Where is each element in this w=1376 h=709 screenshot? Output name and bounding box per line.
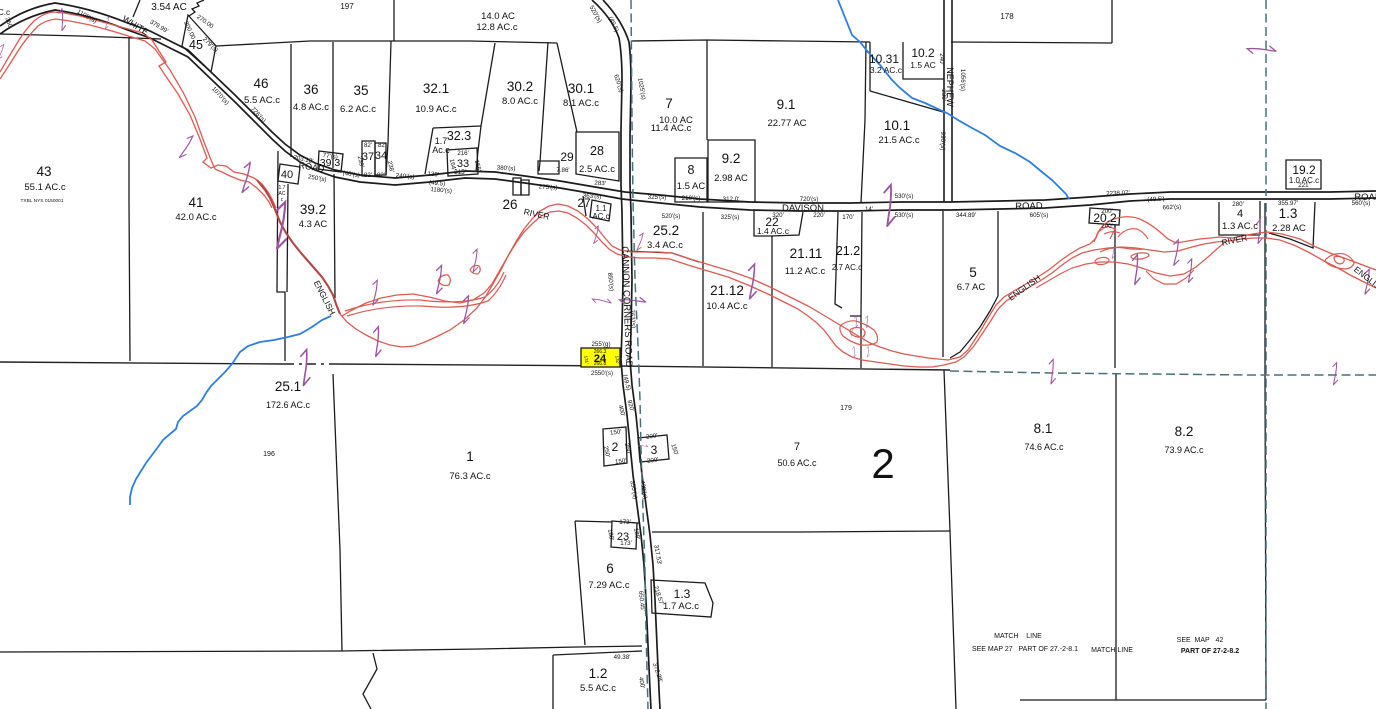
svg-text:220′: 220′ [813, 212, 825, 219]
svg-text:325′(s): 325′(s) [648, 194, 667, 201]
svg-text:2238.07′: 2238.07′ [1106, 190, 1131, 198]
svg-text:179: 179 [840, 405, 852, 412]
svg-text:6.7 AC: 6.7 AC [957, 282, 986, 293]
svg-text:22.77 AC: 22.77 AC [767, 118, 806, 129]
svg-text:46: 46 [253, 76, 268, 91]
svg-text:82′: 82′ [364, 142, 373, 149]
svg-text:215′: 215′ [454, 169, 466, 176]
svg-text:32.3: 32.3 [447, 129, 471, 143]
svg-text:138′: 138′ [427, 171, 440, 179]
svg-text:266.3: 266.3 [594, 349, 607, 355]
svg-text:320′: 320′ [772, 212, 784, 219]
svg-text:3: 3 [651, 443, 658, 457]
svg-text:2: 2 [612, 440, 619, 454]
svg-text:11.2 AC.c: 11.2 AC.c [785, 266, 826, 277]
svg-text:82′: 82′ [364, 172, 373, 179]
svg-text:76.3 AC.c: 76.3 AC.c [449, 471, 490, 482]
svg-text:26: 26 [502, 197, 517, 212]
svg-text:355.97′: 355.97′ [1278, 200, 1299, 207]
svg-text:170′: 170′ [842, 214, 854, 221]
svg-text:7.86′: 7.86′ [556, 167, 570, 174]
svg-text:14.0 AC: 14.0 AC [481, 11, 515, 22]
svg-text:25.1: 25.1 [275, 379, 301, 394]
svg-text:240′: 240′ [938, 53, 945, 65]
svg-text:344.89′: 344.89′ [956, 212, 977, 219]
svg-text:3.2 AC.c: 3.2 AC.c [870, 65, 903, 75]
svg-text:3.4 AC.c: 3.4 AC.c [647, 240, 683, 251]
svg-text:21.12: 21.12 [710, 283, 744, 298]
svg-text:210′(s): 210′(s) [682, 195, 701, 202]
svg-text:SEE MAP 42: SEE MAP 42 [1177, 637, 1224, 644]
svg-text:2.7 AC.c: 2.7 AC.c [832, 263, 862, 272]
svg-text:12.8 AC.c: 12.8 AC.c [476, 22, 517, 33]
svg-text:C.c: C.c [0, 8, 10, 17]
svg-text:8.1: 8.1 [1034, 421, 1053, 436]
svg-text:11.4 AC.c: 11.4 AC.c [651, 123, 692, 134]
svg-text:200′: 200′ [1101, 208, 1113, 215]
svg-text:25.2: 25.2 [653, 223, 679, 238]
svg-text:216′: 216′ [457, 150, 469, 157]
svg-text:283′: 283′ [594, 180, 607, 188]
svg-text:4.3 AC: 4.3 AC [299, 219, 328, 230]
svg-text:49.38′: 49.38′ [614, 654, 631, 661]
svg-text:29: 29 [560, 150, 574, 164]
svg-text:(49.5′): (49.5′) [1147, 196, 1165, 204]
svg-text:5.5 AC.c: 5.5 AC.c [244, 95, 280, 106]
svg-text:7: 7 [794, 441, 800, 453]
svg-text:36: 36 [303, 82, 318, 97]
svg-text:7: 7 [665, 96, 673, 111]
svg-text:10.1: 10.1 [884, 118, 910, 133]
svg-text:1.2: 1.2 [589, 666, 608, 681]
svg-text:2550′(s): 2550′(s) [591, 370, 613, 377]
svg-text:82′: 82′ [377, 172, 386, 179]
svg-text:173′: 173′ [619, 519, 631, 526]
svg-text:2.28 AC: 2.28 AC [1272, 223, 1306, 234]
svg-text:266.8: 266.8 [594, 361, 607, 367]
svg-text:275′(s): 275′(s) [539, 184, 558, 192]
svg-text:MATCH LINE: MATCH LINE [1091, 647, 1133, 654]
svg-text:1.5 AC: 1.5 AC [677, 181, 706, 192]
svg-text:35: 35 [353, 83, 368, 98]
svg-text:TXBL NYS 0150001: TXBL NYS 0150001 [20, 198, 63, 204]
svg-text:178: 178 [1000, 12, 1014, 21]
svg-text:312.0′: 312.0′ [723, 196, 740, 203]
svg-text:530′(s): 530′(s) [895, 212, 914, 219]
svg-text:4: 4 [1237, 208, 1243, 220]
svg-text:173′: 173′ [620, 540, 632, 547]
svg-text:28: 28 [590, 144, 604, 158]
svg-text:6.2 AC.c: 6.2 AC.c [340, 104, 376, 115]
svg-text:8.2: 8.2 [1175, 424, 1194, 439]
svg-text:8.0 AC.c: 8.0 AC.c [502, 96, 538, 107]
svg-text:9.1: 9.1 [777, 97, 796, 112]
svg-text:34: 34 [375, 150, 387, 162]
svg-text:SEE MAP 27 PART OF 27.-2-8.1: SEE MAP 27 PART OF 27.-2-8.1 [972, 646, 1078, 653]
svg-text:8: 8 [688, 163, 695, 177]
svg-text:1.3: 1.3 [1279, 206, 1298, 221]
svg-text:1.4 AC.c: 1.4 AC.c [757, 226, 790, 236]
svg-text:1: 1 [466, 449, 474, 464]
svg-text:10.9 AC.c: 10.9 AC.c [415, 104, 456, 115]
svg-text:255′(g): 255′(g) [591, 341, 610, 348]
svg-text:197: 197 [340, 2, 354, 11]
svg-text:14′: 14′ [865, 206, 874, 213]
svg-text:520′(s): 520′(s) [662, 213, 681, 220]
svg-text:1056′(s): 1056′(s) [959, 69, 966, 91]
svg-text:990′(s): 990′(s) [939, 132, 946, 151]
svg-text:21.2: 21.2 [836, 244, 860, 258]
svg-text:7.29 AC.c: 7.29 AC.c [588, 580, 629, 591]
svg-text:21.11: 21.11 [790, 246, 823, 261]
svg-text:1.5 AC: 1.5 AC [910, 60, 936, 70]
svg-text:4.8 AC.c: 4.8 AC.c [293, 102, 329, 113]
svg-text:10.31: 10.31 [869, 52, 899, 66]
svg-text:10.4 AC.c: 10.4 AC.c [706, 301, 747, 312]
svg-text:PART OF 27-2-8.2: PART OF 27-2-8.2 [1181, 648, 1239, 655]
svg-text:1.7 AC.c: 1.7 AC.c [663, 601, 699, 612]
svg-text:720′(s): 720′(s) [800, 196, 819, 203]
svg-text:9.2: 9.2 [722, 151, 741, 166]
svg-text:30.1: 30.1 [568, 81, 594, 96]
svg-text:21.5 AC.c: 21.5 AC.c [878, 135, 919, 146]
svg-text:30.2: 30.2 [507, 79, 533, 94]
svg-text:50.6 AC.c: 50.6 AC.c [777, 458, 817, 468]
svg-text:280′: 280′ [1232, 201, 1244, 208]
svg-text:2.5 AC.c: 2.5 AC.c [579, 164, 615, 175]
svg-text:5.5 AC.c: 5.5 AC.c [580, 683, 616, 694]
svg-text:10.2: 10.2 [911, 46, 935, 60]
svg-text:8.1 AC.c: 8.1 AC.c [563, 98, 599, 109]
svg-text:41: 41 [188, 195, 203, 210]
svg-text:530′(s): 530′(s) [895, 193, 914, 200]
svg-text:1.3: 1.3 [674, 587, 691, 601]
svg-text:221′: 221′ [1298, 182, 1310, 189]
svg-text:380′(s): 380′(s) [497, 165, 516, 173]
svg-text:230′: 230′ [940, 89, 947, 101]
svg-text:MATCH LINE: MATCH LINE [994, 633, 1042, 640]
svg-text:ROAD: ROAD [1015, 201, 1043, 212]
svg-text:2.98 AC: 2.98 AC [714, 173, 748, 184]
svg-text:42.0 AC.c: 42.0 AC.c [175, 212, 216, 223]
svg-text:19.2: 19.2 [1292, 163, 1316, 177]
svg-text:55.1 AC.c: 55.1 AC.c [24, 182, 65, 193]
svg-text:Ac.c: Ac.c [432, 145, 450, 155]
svg-text:662′(s): 662′(s) [1162, 204, 1181, 212]
svg-text:39.2: 39.2 [300, 202, 326, 217]
svg-text:363′(s): 363′(s) [583, 193, 602, 201]
svg-text:82′: 82′ [378, 142, 387, 149]
svg-text:32.1: 32.1 [423, 81, 449, 96]
svg-text:605′(s): 605′(s) [1030, 212, 1049, 219]
svg-text:74.6 AC.c: 74.6 AC.c [1024, 442, 1064, 452]
svg-text:3.54 AC: 3.54 AC [151, 2, 187, 13]
svg-text:200′: 200′ [1101, 223, 1113, 230]
svg-text:43: 43 [36, 164, 51, 179]
svg-text:AC.c: AC.c [592, 212, 609, 221]
svg-text:5: 5 [969, 265, 977, 280]
svg-text:2: 2 [871, 440, 894, 487]
svg-text:560′(s): 560′(s) [1352, 200, 1371, 207]
svg-text:196: 196 [263, 451, 275, 458]
svg-text:172.6 AC.c: 172.6 AC.c [266, 400, 311, 410]
svg-text:73.9 AC.c: 73.9 AC.c [1164, 445, 1204, 455]
svg-text:325′(s): 325′(s) [721, 214, 740, 221]
svg-text:1.3 AC.c: 1.3 AC.c [1222, 221, 1258, 232]
svg-text:NEPHEW: NEPHEW [945, 67, 955, 107]
svg-text:40: 40 [281, 169, 293, 181]
svg-text:6: 6 [606, 561, 614, 576]
